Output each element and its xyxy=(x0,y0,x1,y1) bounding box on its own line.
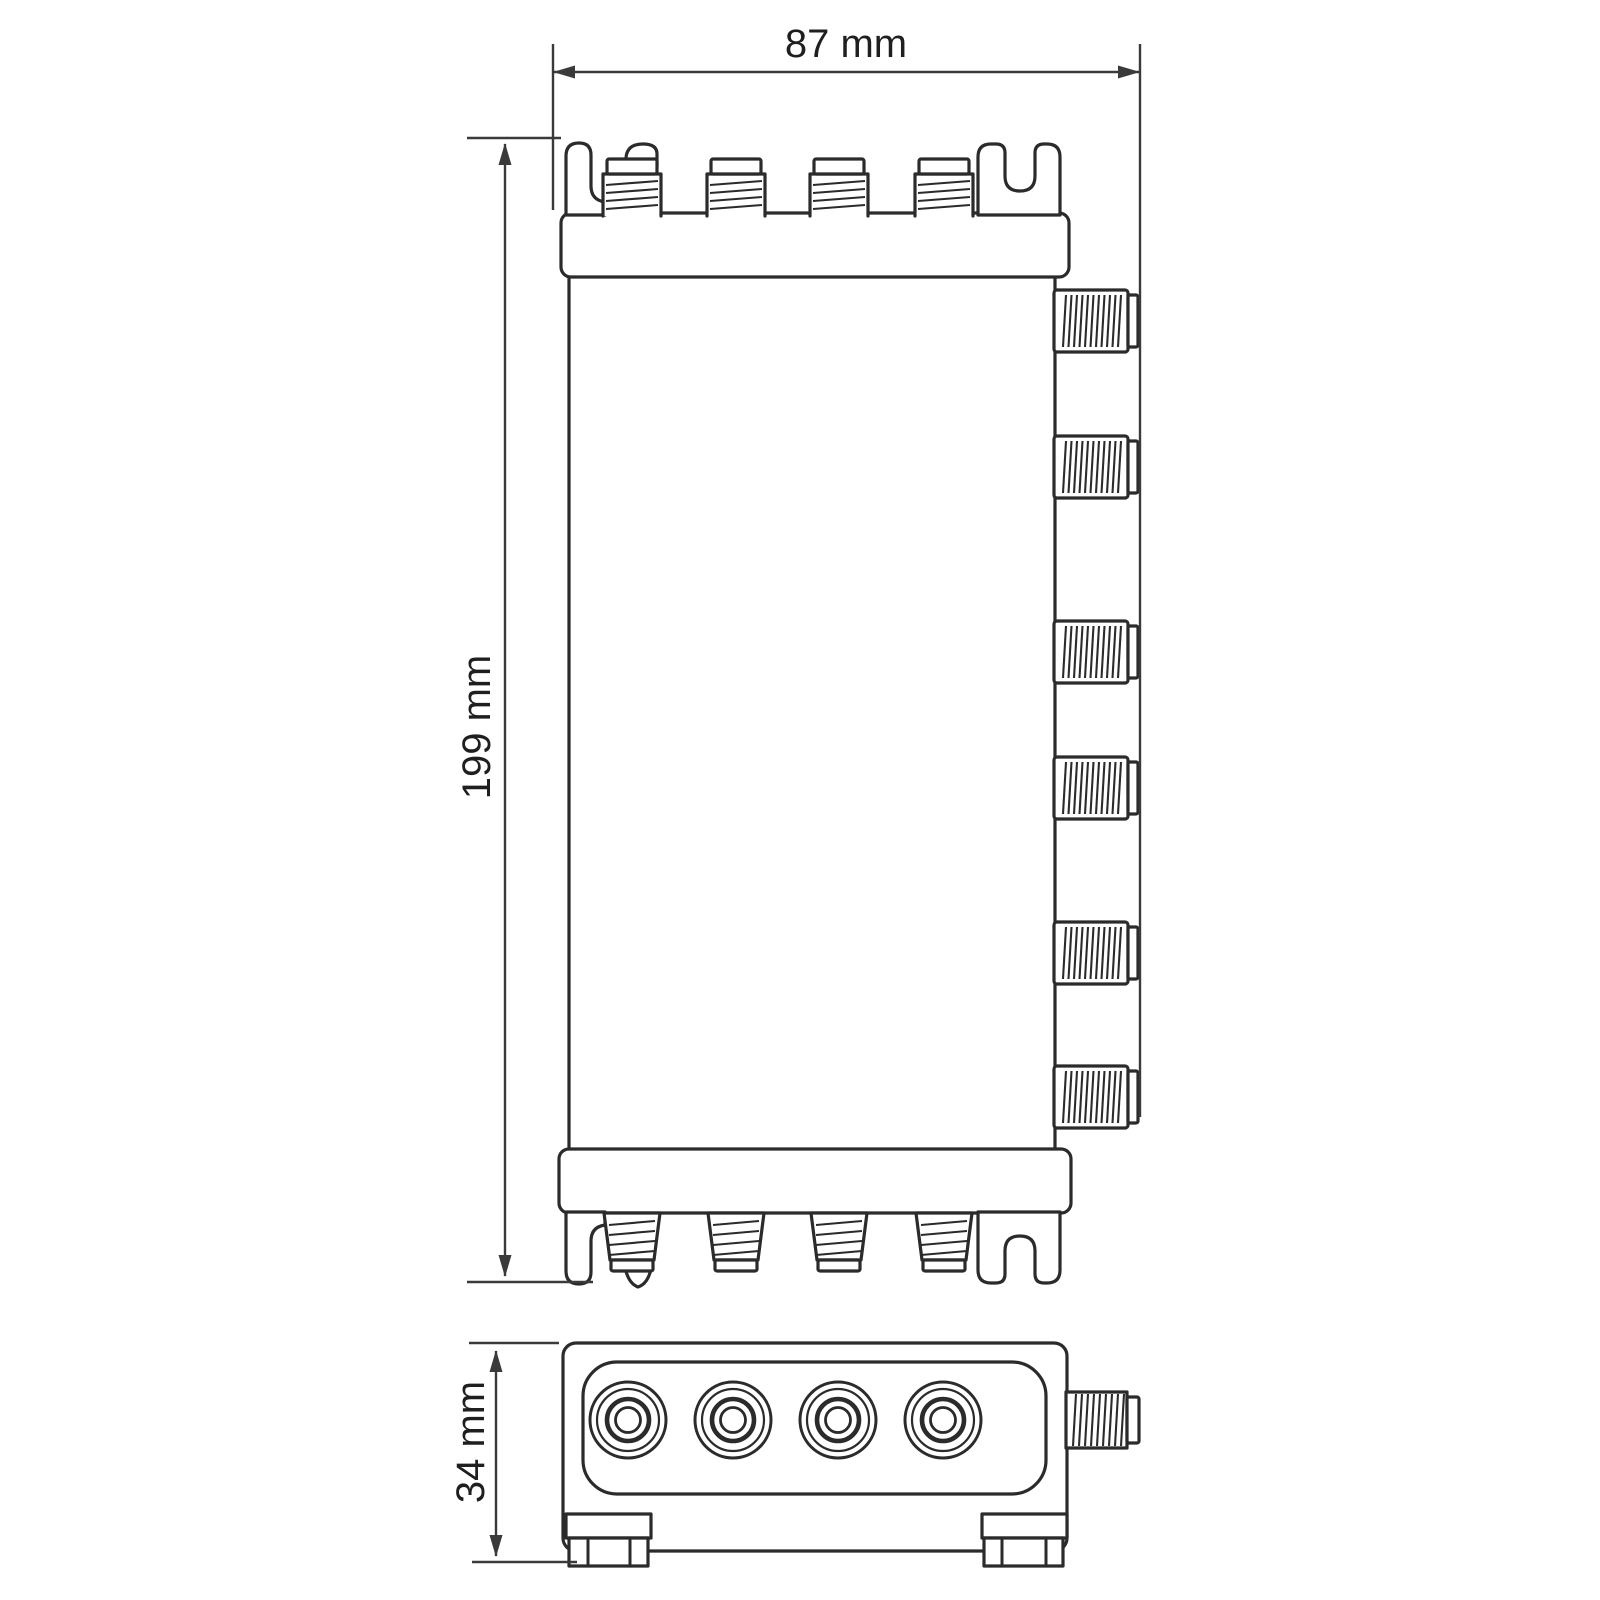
arrowhead-down xyxy=(499,1255,512,1277)
dimension-depth: 34 mm xyxy=(449,1343,577,1562)
front-side-connector xyxy=(1066,1392,1139,1448)
top-connector xyxy=(603,159,661,216)
arrowhead-up xyxy=(490,1350,503,1372)
connector-shank xyxy=(915,174,973,216)
connector-tip xyxy=(1128,295,1138,347)
bottom-connector xyxy=(708,1213,764,1271)
depth-dimension-label: 34 mm xyxy=(449,1381,493,1503)
connector-tip xyxy=(1128,1071,1138,1123)
right-side-connectors xyxy=(1054,290,1138,1128)
side-connector xyxy=(1054,290,1138,352)
foot-left xyxy=(566,1514,651,1566)
device-body xyxy=(569,250,1055,1180)
side-connector xyxy=(1054,922,1138,984)
top-connectors xyxy=(603,159,973,216)
arrowhead-up xyxy=(499,143,512,165)
foot-right xyxy=(982,1514,1067,1566)
top-connector xyxy=(810,159,868,216)
arrowhead-left xyxy=(553,66,575,79)
top-cap xyxy=(561,213,1069,277)
connector-cap xyxy=(818,1260,860,1271)
connector-cap xyxy=(814,159,864,174)
width-dimension-label: 87 mm xyxy=(785,22,907,66)
connector-cap xyxy=(919,159,969,174)
foot-base xyxy=(984,1538,1063,1566)
connector-tip xyxy=(1127,1397,1139,1443)
connector-shank xyxy=(707,174,765,216)
connector-tip xyxy=(1128,441,1138,493)
height-dimension-label: 199 mm xyxy=(455,655,499,800)
foot-base xyxy=(569,1538,648,1566)
arrowhead-right xyxy=(1118,66,1140,79)
top-connector xyxy=(707,159,765,216)
connector-tip xyxy=(1128,626,1138,678)
connector-cap xyxy=(715,1260,757,1271)
bottom-connector xyxy=(604,1213,660,1271)
connector-cap xyxy=(923,1260,965,1271)
bottom-connector xyxy=(811,1213,867,1271)
side-connector xyxy=(1054,621,1138,683)
mounting-tab-top-left xyxy=(566,143,605,215)
connector-cap xyxy=(607,159,657,174)
connector-tip xyxy=(1128,927,1138,979)
connector-cap xyxy=(611,1260,653,1271)
foot-flange xyxy=(982,1514,1067,1538)
side-connector xyxy=(1054,1066,1138,1128)
mounting-tab-top-right xyxy=(978,144,1060,215)
bottom-connectors xyxy=(604,1213,972,1271)
bottom-cap xyxy=(559,1149,1071,1213)
technical-drawing-page: 87 mm 199 mm 34 mm xyxy=(0,0,1600,1600)
bottom-connector xyxy=(916,1213,972,1271)
front-view xyxy=(563,1343,1139,1566)
connector-shank xyxy=(810,174,868,216)
front-panel xyxy=(583,1362,1046,1494)
connector-cap xyxy=(711,159,761,174)
plan-view xyxy=(559,143,1071,1287)
side-connector xyxy=(1054,757,1138,819)
connector-tip xyxy=(1128,762,1138,814)
mounting-tab-bottom-right xyxy=(978,1212,1060,1283)
arrowhead-down xyxy=(490,1535,503,1557)
mounting-tab-bottom-left xyxy=(566,1212,605,1284)
dimension-drawing: 87 mm 199 mm 34 mm xyxy=(0,0,1600,1600)
foot-flange xyxy=(566,1514,651,1538)
side-connector xyxy=(1054,436,1138,498)
connector-shank xyxy=(603,174,661,216)
top-connector xyxy=(915,159,973,216)
